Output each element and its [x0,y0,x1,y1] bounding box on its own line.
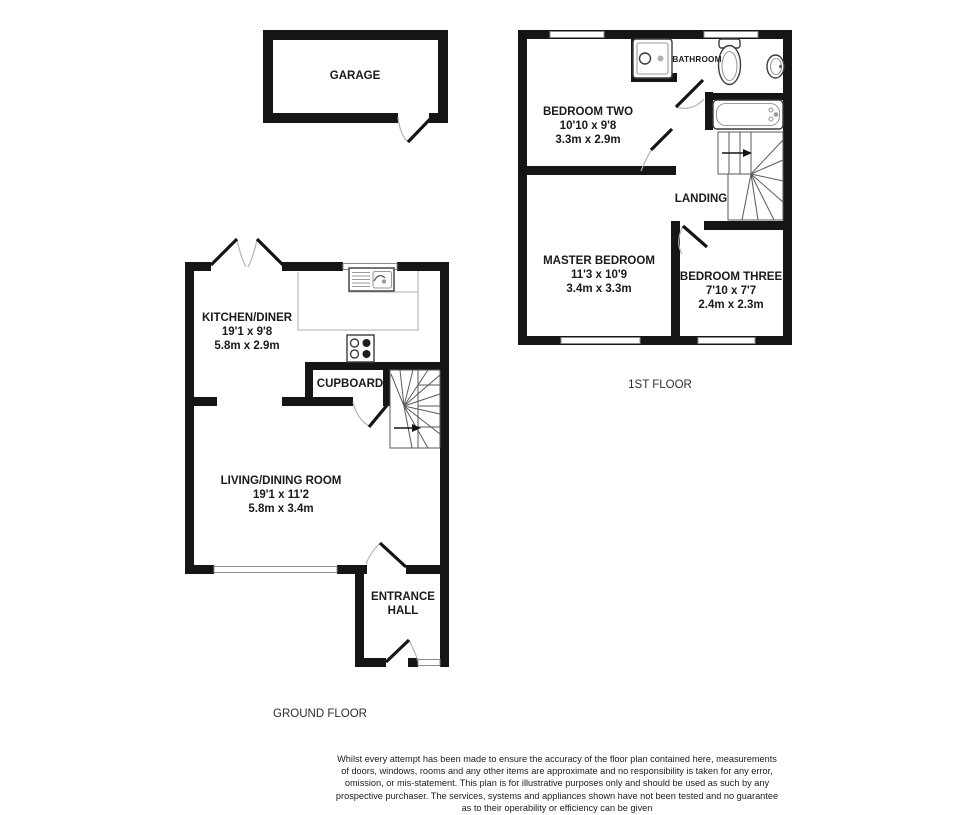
disclaimer-line: of doors, windows, rooms and any other i… [336,765,778,777]
patio-double-doors [211,239,283,267]
room-dims-metric: 2.4m x 2.3m [680,298,782,312]
first-floor-caption: 1ST FLOOR [628,379,692,391]
living-room-window [214,567,337,573]
room-dims-imperial: 19'1 x 9'8 [202,325,292,339]
disclaimer-text: Whilst every attempt has been made to en… [336,753,778,814]
room-name: BEDROOM THREE [680,270,782,284]
room-name: GARAGE [330,69,380,83]
bedroom-two-label: BEDROOM TWO 10'10 x 9'8 3.3m x 2.9m [543,105,633,147]
room-dims-imperial: 7'10 x 7'7 [680,284,782,298]
bathroom-window [704,32,758,38]
room-dims-imperial: 19'1 x 11'2 [221,488,342,502]
garage-plan [263,30,448,142]
bathroom-door [676,80,704,108]
shower-icon [633,39,672,78]
room-name: MASTER BEDROOM [543,254,655,268]
cupboard-door [353,402,388,427]
room-dims-metric: 5.8m x 2.9m [202,339,292,353]
room-dims-metric: 3.4m x 3.3m [543,282,655,296]
kitchen-sink-icon [349,268,394,291]
room-name: CUPBOARD [317,377,383,391]
bathtub-icon [713,100,783,129]
ground-floor-caption: GROUND FLOOR [273,708,367,720]
entrance-hall-window [418,660,440,666]
floorplan-drawing [0,0,980,815]
disclaimer-line: omission, or mis-statement. This plan is… [336,777,778,789]
kitchen-diner-label: KITCHEN/DINER 19'1 x 9'8 5.8m x 2.9m [202,311,292,353]
room-dims-imperial: 11'3 x 10'9 [543,268,655,282]
master-bedroom-window [561,338,640,344]
room-name: ENTRANCE HALL [360,590,446,618]
living-dining-label: LIVING/DINING ROOM 19'1 x 11'2 5.8m x 3.… [221,474,342,516]
room-dims-imperial: 10'10 x 9'8 [543,119,633,133]
room-name: KITCHEN/DINER [202,311,292,325]
room-name: LIVING/DINING ROOM [221,474,342,488]
staircase-icon [390,370,440,448]
stairs-direction-arrow-icon [722,149,752,157]
room-name: BEDROOM TWO [543,105,633,119]
disclaimer-line: prospective purchaser. The services, sys… [336,790,778,802]
cupboard-label: CUPBOARD [317,377,383,391]
master-bedroom-label: MASTER BEDROOM 11'3 x 10'9 3.4m x 3.3m [543,254,655,296]
room-dims-metric: 5.8m x 3.4m [221,502,342,516]
room-dims-metric: 3.3m x 2.9m [543,133,633,147]
bedroom-three-label: BEDROOM THREE 7'10 x 7'7 2.4m x 2.3m [680,270,782,312]
disclaimer-line: Whilst every attempt has been made to en… [336,753,778,765]
bedroom-three-door [679,226,707,254]
bedroom-two-door [641,129,672,171]
hob-icon [347,335,374,362]
room-name: LANDING [675,192,727,206]
bedroom-two-window [550,32,604,38]
entrance-hall-label: ENTRANCE HALL [360,590,446,618]
garage-label: GARAGE [330,69,380,83]
bedroom-three-window [698,338,755,344]
sink-icon [767,55,784,78]
toilet-icon [719,39,741,85]
garage-door [398,116,433,142]
bathroom-label: BATHROOM [672,53,721,67]
landing-label: LANDING [675,192,727,206]
living-to-entrance-door [366,543,406,567]
disclaimer-line: as to their operability or efficiency ca… [336,802,778,814]
floorplan-canvas: GARAGE KITCHEN/DINER 19'1 x 9'8 5.8m x 2… [0,0,980,815]
room-name: BATHROOM [672,53,721,67]
staircase-icon [718,132,783,220]
